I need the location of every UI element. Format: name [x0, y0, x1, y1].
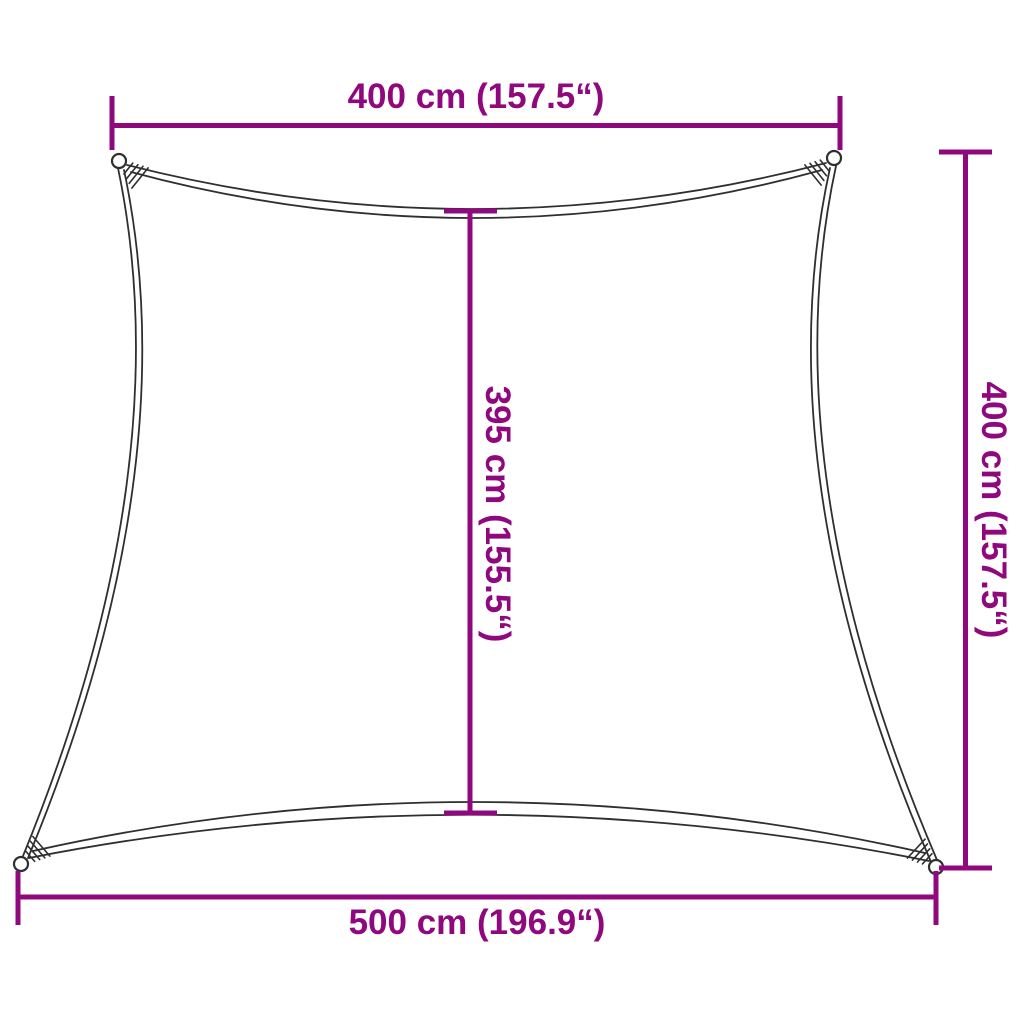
sail-bottom-edge — [33, 802, 925, 853]
middle-dimension-label: 395 cm (155.5“) — [477, 386, 517, 643]
top-dimension-label: 400 cm (157.5“) — [348, 77, 605, 117]
sail-right-edge-inner — [811, 168, 931, 862]
corner-ring-icon — [112, 154, 126, 168]
sail-left-edge — [23, 168, 136, 856]
sail-left-edge-inner — [28, 170, 142, 858]
corner-ring-icon — [14, 857, 28, 871]
corner-bottom-right — [907, 839, 943, 874]
sail-right-edge — [817, 166, 937, 860]
product-dimension-diagram: 400 cm (157.5“) 400 cm (157.5“) 395 cm (… — [0, 0, 1024, 1024]
corner-ring-icon — [827, 151, 841, 165]
sail-top-edge — [127, 163, 826, 209]
corner-top-left — [112, 154, 148, 188]
corner-bottom-left — [14, 836, 50, 871]
sail-bottom-edge-inner — [29, 815, 929, 861]
bottom-dimension-label: 500 cm (196.9“) — [349, 903, 606, 943]
right-dimension-label: 400 cm (157.5“) — [973, 382, 1013, 639]
